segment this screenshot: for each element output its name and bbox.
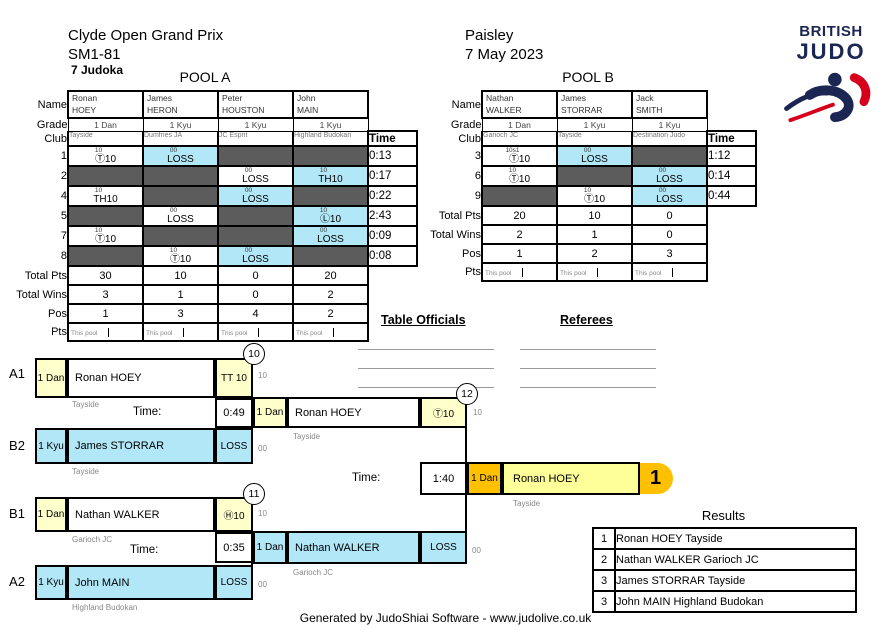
total-cell: 2 — [293, 304, 368, 323]
total-cell: 30 — [68, 266, 143, 285]
row-label: 2 — [6, 166, 68, 186]
row-label: 6 — [424, 166, 482, 186]
match-number-badge: 11 — [243, 483, 265, 505]
match-time-cell: 0:22 — [368, 186, 417, 206]
pts-cell: This pool — [143, 323, 218, 341]
match-time-cell: 0:13 — [368, 146, 417, 166]
result-place: 3 — [593, 591, 615, 612]
match-number-badge: 10 — [243, 343, 265, 365]
match-cell — [293, 146, 368, 166]
sf2-top-club: Garioch JC — [72, 535, 112, 544]
sf1-bottom-club: Tayside — [72, 467, 99, 476]
match-cell: 00LOSS — [632, 186, 707, 206]
match-cell: 10Ⓛ10 — [293, 206, 368, 226]
sf2-bottom-score: LOSS — [215, 565, 253, 600]
match-number-badge: 12 — [456, 383, 478, 405]
bracket-slot-a1: A1 — [4, 366, 30, 381]
referees-line — [520, 349, 656, 350]
total-cell: 10 — [557, 206, 632, 225]
final-bottom-points: 00 — [472, 546, 481, 555]
final-bottom-grade: 1 Dan — [253, 531, 287, 564]
results-table: 1 Ronan HOEY Tayside 2 Nathan WALKER Gar… — [592, 527, 857, 613]
final-top-name: Ronan HOEY — [287, 397, 420, 428]
match-time-cell: 2:43 — [368, 206, 417, 226]
spacer — [707, 244, 756, 263]
referees-line — [520, 368, 656, 369]
match-cell — [293, 246, 368, 266]
match-cell: 10s1Ⓣ10 — [482, 146, 557, 166]
spacer — [368, 285, 417, 304]
row-label: 7 — [6, 226, 68, 246]
spacer — [707, 118, 756, 131]
match-cell — [218, 226, 293, 246]
player-grade-cell: 1 Kyu — [293, 118, 368, 131]
category-label: SM1-81 — [68, 46, 121, 63]
tournament-sheet: { "header": { "title": "Clyde Open Grand… — [0, 0, 891, 630]
sf1-top-name: Ronan HOEY — [67, 358, 215, 398]
pts-cell: This pool — [68, 323, 143, 341]
match-time-cell: 0:17 — [368, 166, 417, 186]
venue-label: Paisley — [465, 27, 513, 44]
spacer — [707, 206, 756, 225]
match-cell — [143, 166, 218, 186]
match-cell: 10TH10 — [293, 166, 368, 186]
sf1-time-value: 0:49 — [215, 398, 253, 428]
match-cell — [632, 146, 707, 166]
player-name-cell: NathanWALKER — [482, 91, 557, 118]
sf2-bottom-grade: 1 Kyu — [35, 565, 67, 600]
row-label: Club — [6, 131, 68, 146]
result-place: 3 — [593, 570, 615, 591]
final-bottom-club: Garioch JC — [293, 568, 333, 577]
match-cell — [143, 226, 218, 246]
date-label: 7 May 2023 — [465, 46, 543, 63]
result-row: 1 Ronan HOEY Tayside — [593, 528, 856, 549]
match-time-cell: 1:12 — [707, 146, 756, 166]
row-label: Name — [6, 91, 68, 118]
bracket-slot-a2: A2 — [4, 574, 30, 589]
referees-heading: Referees — [560, 313, 613, 327]
table-officials-heading: Table Officials — [381, 313, 466, 327]
match-cell — [482, 186, 557, 206]
final-time-value: 1:40 — [420, 462, 467, 495]
judoka-count: 7 Judoka — [71, 63, 123, 77]
row-label: Grade — [424, 118, 482, 131]
this-pool-label: This pool — [294, 328, 334, 337]
pts-cell: This pool — [218, 323, 293, 341]
row-label: 3 — [424, 146, 482, 166]
sf2-top-name: Nathan WALKER — [67, 497, 215, 532]
pool-a-title: POOL A — [145, 69, 265, 85]
pts-cell: This pool — [293, 323, 368, 341]
this-pool-label: This pool — [558, 268, 598, 277]
sf2-top-points: 10 — [258, 509, 267, 518]
row-label: Pts — [6, 323, 68, 341]
result-name: John MAIN Highland Budokan — [615, 591, 856, 612]
pts-cell: This pool — [632, 263, 707, 281]
sf2-time-label: Time: — [130, 544, 158, 556]
player-club-cell: Garioch JC — [482, 131, 557, 146]
sf1-top-grade: 1 Dan — [35, 358, 67, 398]
player-grade-cell: 1 Dan — [68, 118, 143, 131]
player-name-cell: RonanHOEY — [68, 91, 143, 118]
result-row: 2 Nathan WALKER Garioch JC — [593, 549, 856, 570]
match-cell — [143, 186, 218, 206]
match-cell — [68, 166, 143, 186]
match-time-cell: 0:14 — [707, 166, 756, 186]
match-cell — [218, 146, 293, 166]
sf1-bottom-points: 00 — [258, 444, 267, 453]
player-club-cell: JC Esprit — [218, 131, 293, 146]
referees-line — [520, 387, 656, 388]
row-label: Pos — [424, 244, 482, 263]
spacer — [707, 263, 756, 281]
total-cell: 10 — [143, 266, 218, 285]
match-cell: 00LOSS — [293, 226, 368, 246]
player-club-cell: Dumfries JA — [143, 131, 218, 146]
judo-figure-icon — [781, 66, 881, 124]
total-cell: 0 — [632, 206, 707, 225]
match-cell — [557, 166, 632, 186]
sf2-top-grade: 1 Dan — [35, 497, 67, 532]
player-grade-cell: 1 Kyu — [557, 118, 632, 131]
total-cell: 20 — [293, 266, 368, 285]
bracket-slot-b1: B1 — [4, 506, 30, 521]
player-grade-cell: 1 Kyu — [632, 118, 707, 131]
pool-b-title: POOL B — [528, 69, 648, 85]
row-label: Name — [424, 91, 482, 118]
winner-name: Ronan HOEY — [502, 462, 640, 495]
player-name-cell: JohnMAIN — [293, 91, 368, 118]
spacer — [368, 118, 417, 131]
sf1-bottom-grade: 1 Kyu — [35, 428, 67, 464]
match-cell: 10Ⓣ10 — [482, 166, 557, 186]
total-cell: 2 — [293, 285, 368, 304]
match-cell: 10Ⓣ10 — [68, 226, 143, 246]
officials-line — [358, 349, 494, 350]
row-label: Club — [424, 131, 482, 146]
winner-place-badge: 1 — [638, 463, 673, 494]
spacer — [707, 225, 756, 244]
event-title: Clyde Open Grand Prix — [68, 27, 223, 44]
match-time-cell: 0:08 — [368, 246, 417, 266]
player-club-cell: Destination Judo — [632, 131, 707, 146]
row-label: Grade — [6, 118, 68, 131]
total-cell: 1 — [68, 304, 143, 323]
row-label: Total Wins — [6, 285, 68, 304]
match-cell: 00LOSS — [218, 246, 293, 266]
officials-line — [358, 368, 494, 369]
result-place: 2 — [593, 549, 615, 570]
this-pool-label: This pool — [144, 328, 184, 337]
player-club-cell: Tayside — [68, 131, 143, 146]
row-label: 8 — [6, 246, 68, 266]
total-cell: 0 — [632, 225, 707, 244]
player-name-cell: JamesSTORRAR — [557, 91, 632, 118]
total-cell: 1 — [557, 225, 632, 244]
results-title: Results — [592, 508, 855, 523]
total-cell: 20 — [482, 206, 557, 225]
sf1-top-points: 10 — [258, 371, 267, 380]
row-label: 5 — [6, 206, 68, 226]
match-time-cell: 0:44 — [707, 186, 756, 206]
total-cell: 2 — [482, 225, 557, 244]
player-club-cell: Highland Budokan — [293, 131, 368, 146]
player-name-cell: PeterHOUSTON — [218, 91, 293, 118]
player-grade-cell: 1 Kyu — [218, 118, 293, 131]
row-label: 9 — [424, 186, 482, 206]
row-label: Pts — [424, 263, 482, 281]
match-cell — [218, 206, 293, 226]
time-column-header: Time — [368, 131, 417, 146]
match-cell: 00LOSS — [632, 166, 707, 186]
final-bottom-score: LOSS — [420, 531, 467, 564]
match-cell: 00LOSS — [218, 166, 293, 186]
sf2-bottom-points: 00 — [258, 580, 267, 589]
sf1-bottom-name: James STORRAR — [67, 428, 215, 464]
result-place: 1 — [593, 528, 615, 549]
row-label: Total Wins — [424, 225, 482, 244]
match-cell — [293, 186, 368, 206]
player-club-cell: Tayside — [557, 131, 632, 146]
match-cell: 00LOSS — [143, 146, 218, 166]
row-label: Pos — [6, 304, 68, 323]
total-cell: 4 — [218, 304, 293, 323]
british-judo-logo: BRITISH JUDO — [778, 24, 884, 129]
result-row: 3 John MAIN Highland Budokan — [593, 591, 856, 612]
bracket-slot-b2: B2 — [4, 438, 30, 453]
logo-text-line2: JUDO — [778, 41, 884, 63]
total-cell: 3 — [143, 304, 218, 323]
total-cell: 0 — [218, 285, 293, 304]
pts-cell: This pool — [482, 263, 557, 281]
this-pool-label: This pool — [633, 268, 673, 277]
spacer — [368, 266, 417, 285]
sf1-top-club: Tayside — [72, 400, 99, 409]
match-cell — [68, 206, 143, 226]
footer-credit: Generated by JudoShiai Software - www.ju… — [0, 611, 891, 625]
final-top-grade: 1 Dan — [253, 397, 287, 428]
player-grade-cell: 1 Dan — [482, 118, 557, 131]
row-label: 4 — [6, 186, 68, 206]
match-cell: 00LOSS — [557, 146, 632, 166]
total-cell: 1 — [143, 285, 218, 304]
match-cell: 10Ⓣ10 — [68, 146, 143, 166]
result-name: James STORRAR Tayside — [615, 570, 856, 591]
result-row: 3 James STORRAR Tayside — [593, 570, 856, 591]
final-top-points: 10 — [473, 408, 482, 417]
total-cell: 0 — [218, 266, 293, 285]
total-cell: 3 — [68, 285, 143, 304]
match-cell: 10TH10 — [68, 186, 143, 206]
sf1-top-score: TT 10 — [215, 358, 253, 398]
this-pool-label: This pool — [219, 328, 259, 337]
match-cell: 00LOSS — [143, 206, 218, 226]
sf2-bottom-name: John MAIN — [67, 565, 215, 600]
this-pool-label: This pool — [483, 268, 523, 277]
row-label: 1 — [6, 146, 68, 166]
player-name-cell: JamesHERON — [143, 91, 218, 118]
time-column-header: Time — [707, 131, 756, 146]
total-cell: 3 — [632, 244, 707, 263]
match-cell: 10Ⓣ10 — [143, 246, 218, 266]
this-pool-label: This pool — [69, 328, 109, 337]
row-label: Total Pts — [424, 206, 482, 225]
spacer — [707, 91, 756, 118]
spacer — [368, 91, 417, 118]
total-cell: 2 — [557, 244, 632, 263]
match-time-cell: 0:09 — [368, 226, 417, 246]
row-label: Total Pts — [6, 266, 68, 285]
final-top-club: Tayside — [293, 432, 320, 441]
result-name: Ronan HOEY Tayside — [615, 528, 856, 549]
match-cell: 00LOSS — [218, 186, 293, 206]
match-cell: 10Ⓣ10 — [557, 186, 632, 206]
player-name-cell: JackSMITH — [632, 91, 707, 118]
sf1-time-label: Time: — [133, 406, 161, 418]
winner-club: Tayside — [513, 499, 540, 508]
sf2-time-value: 0:35 — [215, 532, 253, 563]
final-time-label: Time: — [352, 472, 380, 484]
result-name: Nathan WALKER Garioch JC — [615, 549, 856, 570]
final-bottom-name: Nathan WALKER — [287, 531, 420, 564]
pts-cell: This pool — [557, 263, 632, 281]
winner-grade: 1 Dan — [467, 462, 502, 495]
total-cell: 1 — [482, 244, 557, 263]
pool-b-grid: NameNathanWALKERJamesSTORRARJackSMITHGra… — [424, 90, 757, 282]
pool-a-grid: NameRonanHOEYJamesHERONPeterHOUSTONJohnM… — [6, 90, 418, 342]
sf1-bottom-score: LOSS — [215, 428, 253, 464]
player-grade-cell: 1 Kyu — [143, 118, 218, 131]
match-cell — [68, 246, 143, 266]
